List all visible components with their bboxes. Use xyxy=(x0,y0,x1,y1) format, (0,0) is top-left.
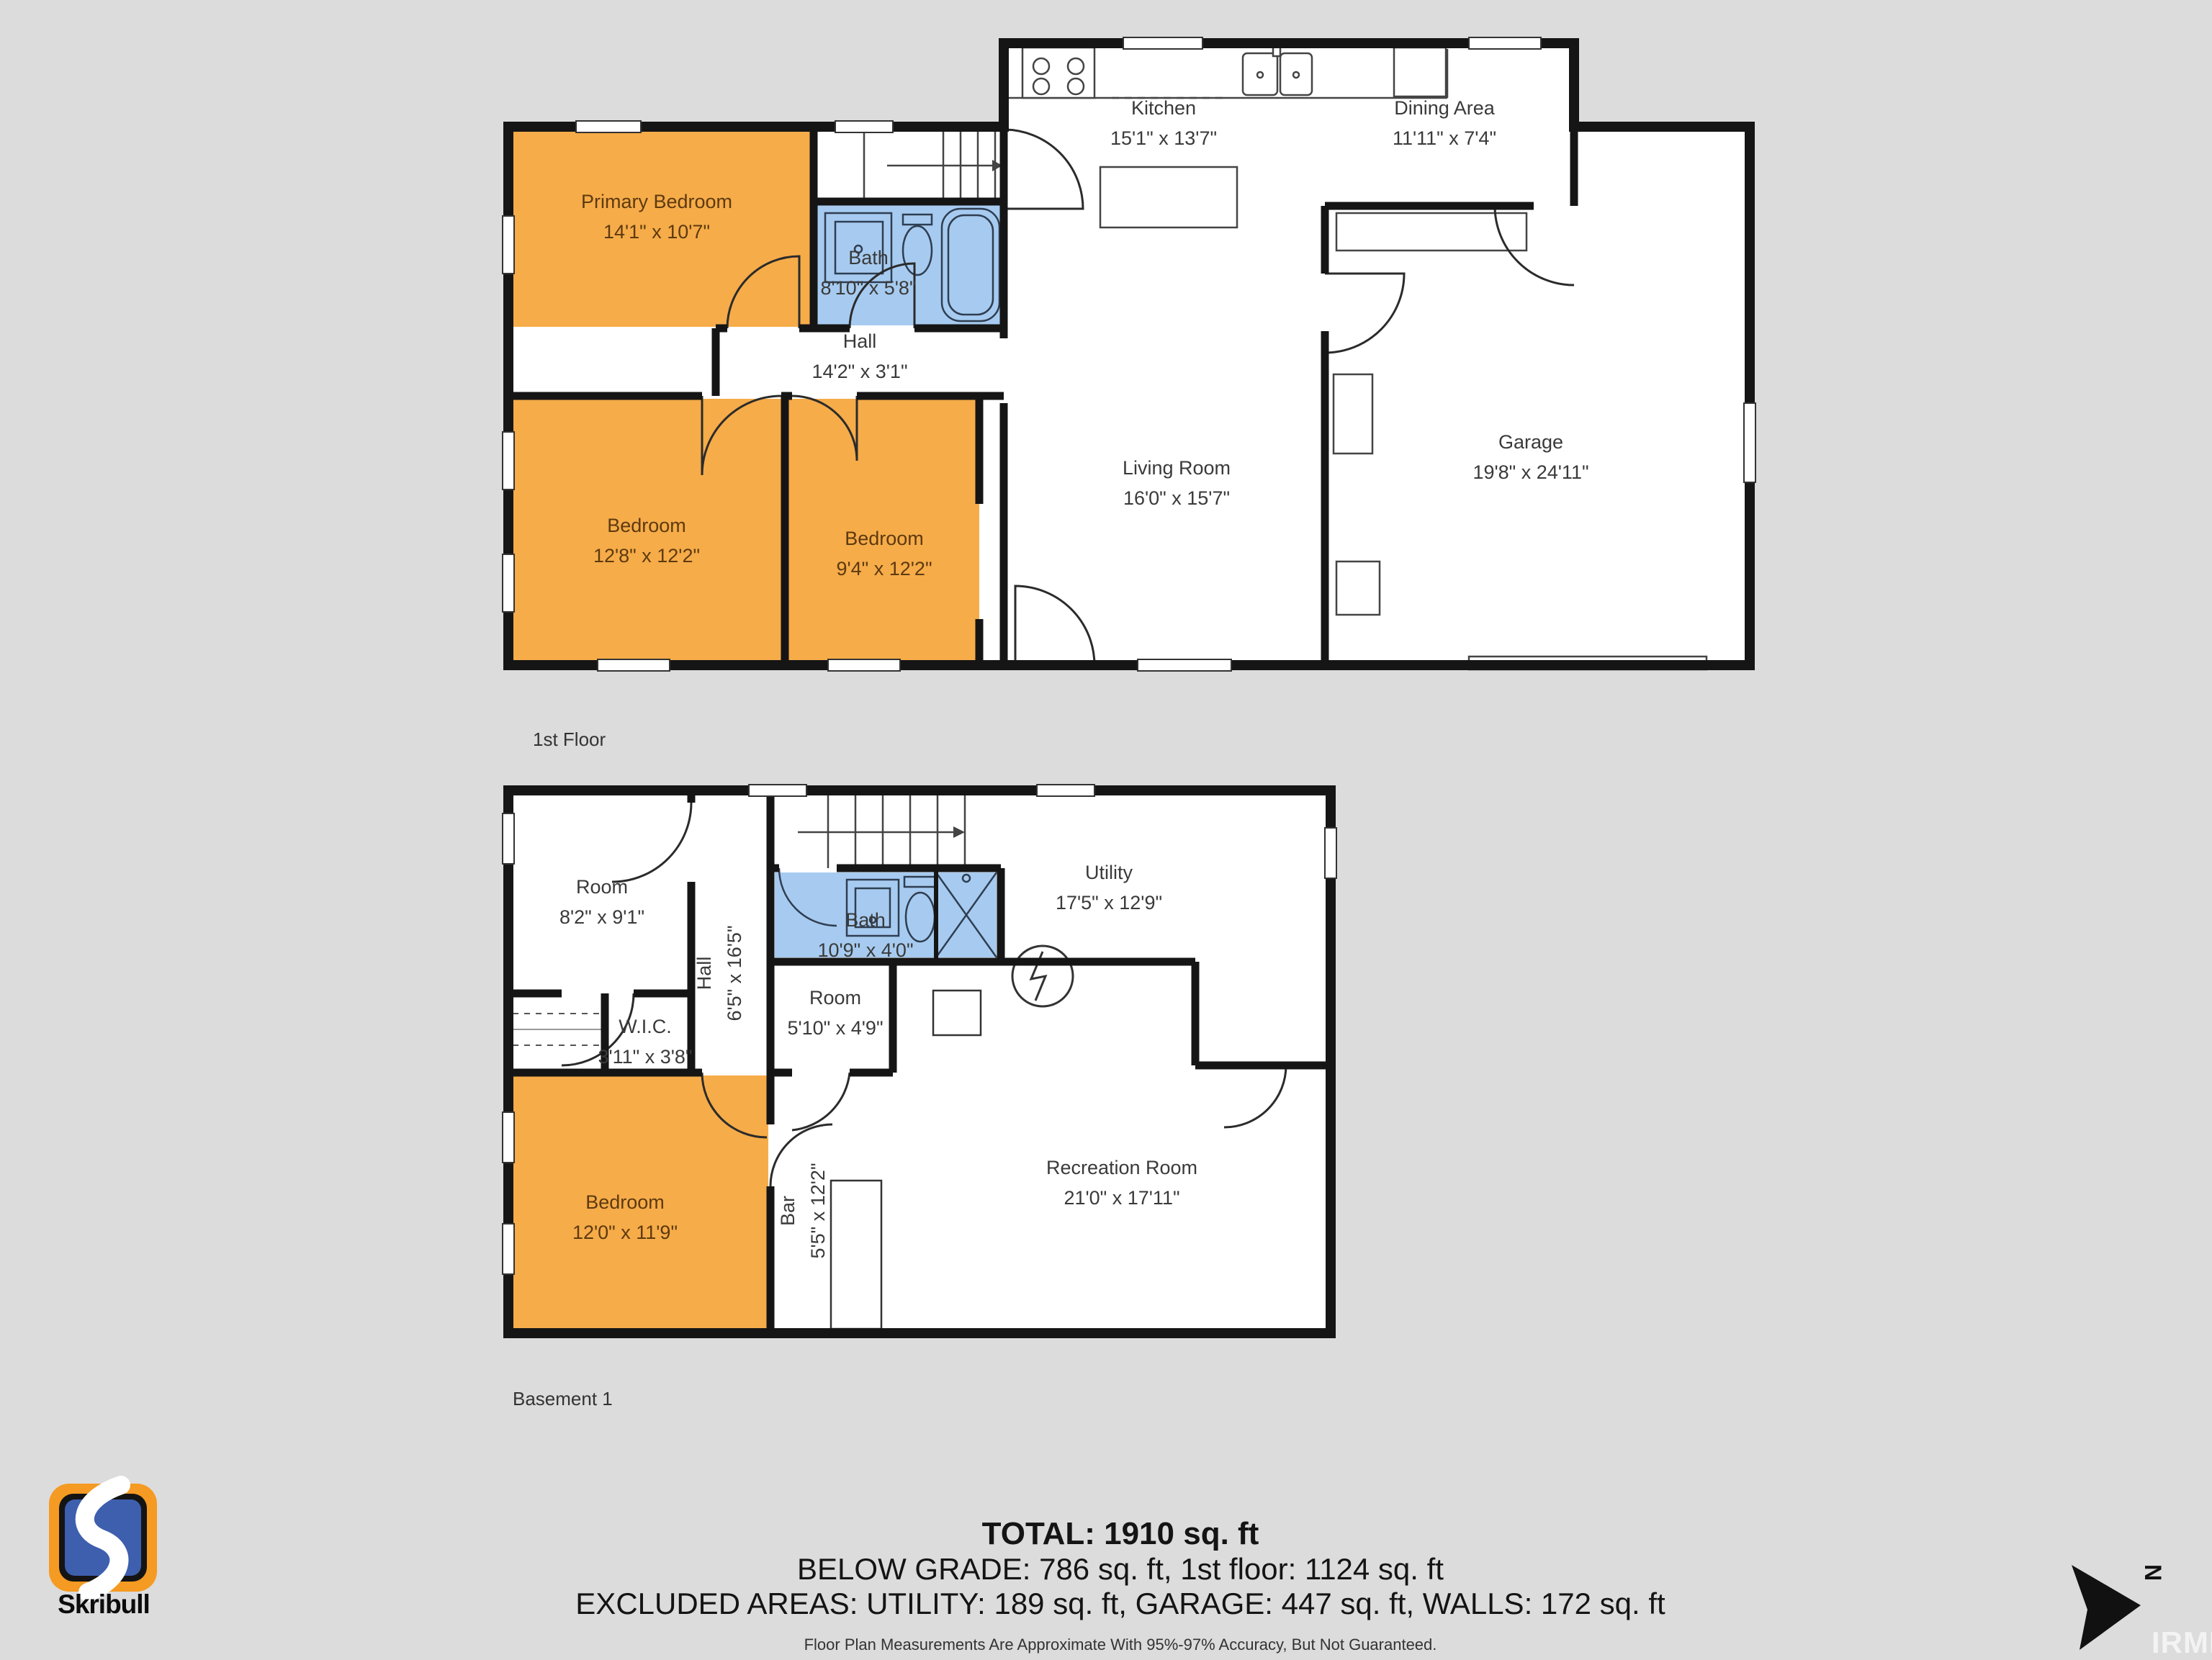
north-arrow-icon xyxy=(2072,1565,2141,1650)
floor-plan-drawing xyxy=(0,0,2212,1659)
basement-plan xyxy=(503,785,1336,1333)
summary-block: TOTAL: 1910 sq. ft BELOW GRADE: 786 sq. … xyxy=(575,1516,1665,1621)
mls-watermark: IRMLS xyxy=(2152,1625,2212,1660)
summary-excluded: EXCLUDED AREAS: UTILITY: 189 sq. ft, GAR… xyxy=(575,1587,1665,1621)
bar-counter xyxy=(831,1181,881,1329)
first-floor-plan xyxy=(503,37,1755,671)
north-label: N xyxy=(2139,1564,2166,1581)
summary-below-grade: BELOW GRADE: 786 sq. ft, 1st floor: 1124… xyxy=(575,1552,1665,1587)
floor-name-1st: 1st Floor xyxy=(533,728,606,751)
floor-name-basement: Basement 1 xyxy=(513,1388,613,1410)
summary-total: TOTAL: 1910 sq. ft xyxy=(575,1516,1665,1552)
floor-plan-page: { "colors": { "background": "#dcdcdc", "… xyxy=(0,0,2212,1659)
skribull-logo-icon xyxy=(49,1484,157,1592)
logo-wordmark: Skribull xyxy=(48,1589,160,1620)
disclaimer-text: Floor Plan Measurements Are Approximate … xyxy=(804,1636,1437,1654)
